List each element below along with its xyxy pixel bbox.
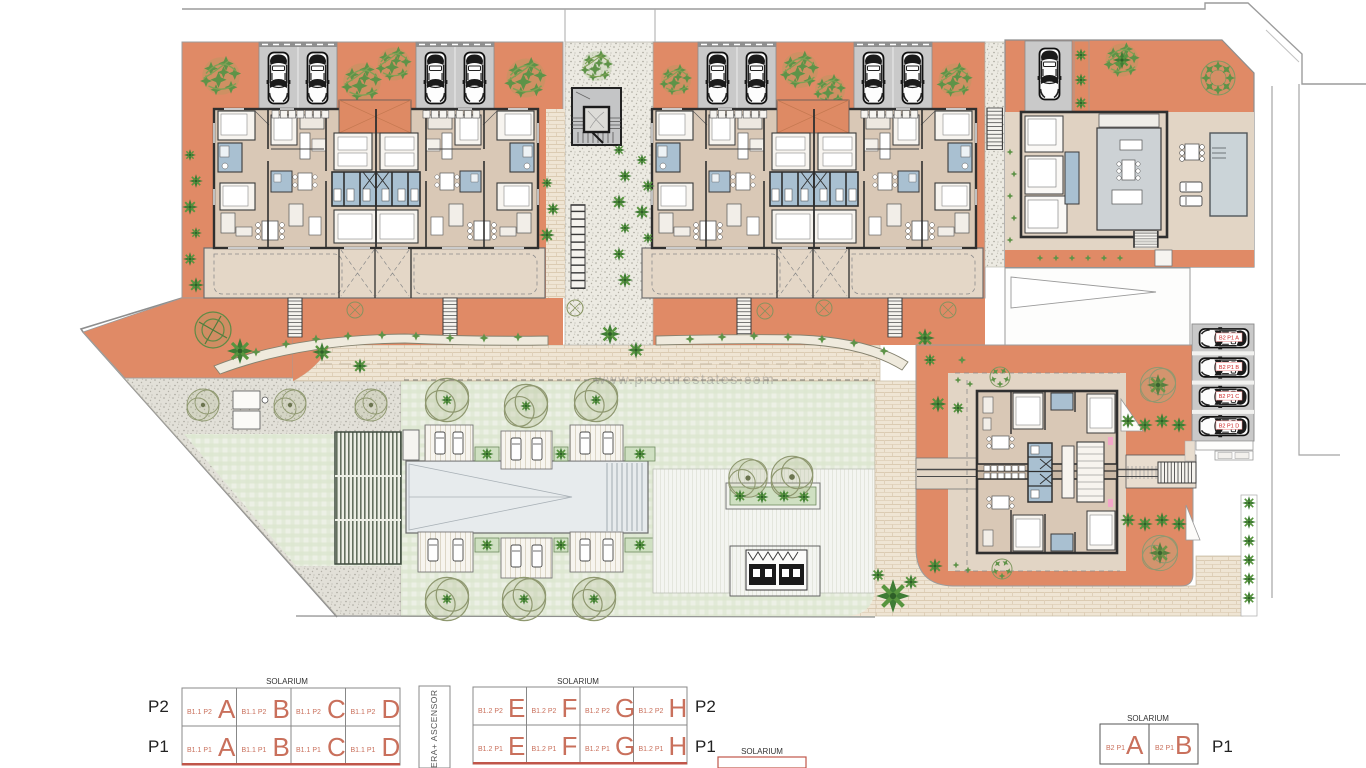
svg-text:SOLARIUM: SOLARIUM [741,747,783,756]
svg-text:B1.2 P1: B1.2 P1 [532,746,557,753]
svg-text:B1.2 P2: B1.2 P2 [478,708,503,715]
svg-text:P1: P1 [1212,737,1233,756]
svg-text:A: A [1126,730,1144,760]
svg-text:B1.1 P1: B1.1 P1 [351,747,376,754]
svg-text:B: B [273,694,290,724]
svg-text:B1.1 P1: B1.1 P1 [242,747,267,754]
svg-text:B1.2 P1: B1.2 P1 [639,746,664,753]
svg-text:B1.2 P1: B1.2 P1 [585,746,610,753]
svg-text:B: B [273,732,290,762]
svg-text:ERA+ ASCENSOR: ERA+ ASCENSOR [429,690,439,768]
svg-text:B1.2 P2: B1.2 P2 [639,708,664,715]
svg-text:A: A [218,732,236,762]
svg-text:E: E [508,731,525,761]
svg-text:E: E [508,693,525,723]
svg-text:B: B [1175,730,1192,760]
svg-text:SOLARIUM: SOLARIUM [266,677,308,686]
svg-text:P2: P2 [148,697,169,716]
svg-text:B1.2 P2: B1.2 P2 [585,708,610,715]
svg-text:F: F [562,693,578,723]
svg-text:www.procurestates.com: www.procurestates.com [594,371,775,387]
svg-text:SOLARIUM: SOLARIUM [1127,714,1169,723]
svg-text:G: G [615,693,635,723]
svg-text:B2 P1: B2 P1 [1155,745,1174,752]
svg-text:C: C [327,732,346,762]
svg-text:B2 P1 D: B2 P1 D [1219,423,1240,429]
svg-text:C: C [327,694,346,724]
svg-text:D: D [382,694,401,724]
svg-text:B1.2 P1: B1.2 P1 [478,746,503,753]
svg-text:D: D [382,732,401,762]
svg-text:B1.2 P2: B1.2 P2 [532,708,557,715]
svg-text:P2: P2 [695,697,716,716]
svg-text:SOLARIUM: SOLARIUM [557,677,599,686]
svg-text:P1: P1 [148,737,169,756]
svg-text:B2 P1 B: B2 P1 B [1219,365,1240,371]
svg-text:B1.1 P2: B1.1 P2 [351,709,376,716]
svg-text:B1.1 P1: B1.1 P1 [187,747,212,754]
svg-text:B1.1 P1: B1.1 P1 [296,747,321,754]
svg-text:B2 P1 A: B2 P1 A [1219,336,1239,342]
svg-text:A: A [218,694,236,724]
svg-text:G: G [615,731,635,761]
svg-text:H: H [669,693,688,723]
svg-text:B2 P1: B2 P1 [1106,745,1125,752]
svg-text:B1.1 P2: B1.1 P2 [187,709,212,716]
svg-text:F: F [562,731,578,761]
svg-text:P1: P1 [695,737,716,756]
svg-text:B1.1 P2: B1.1 P2 [242,709,267,716]
svg-text:B1.1 P2: B1.1 P2 [296,709,321,716]
svg-text:B2 P1 C: B2 P1 C [1219,394,1240,400]
svg-text:H: H [669,731,688,761]
